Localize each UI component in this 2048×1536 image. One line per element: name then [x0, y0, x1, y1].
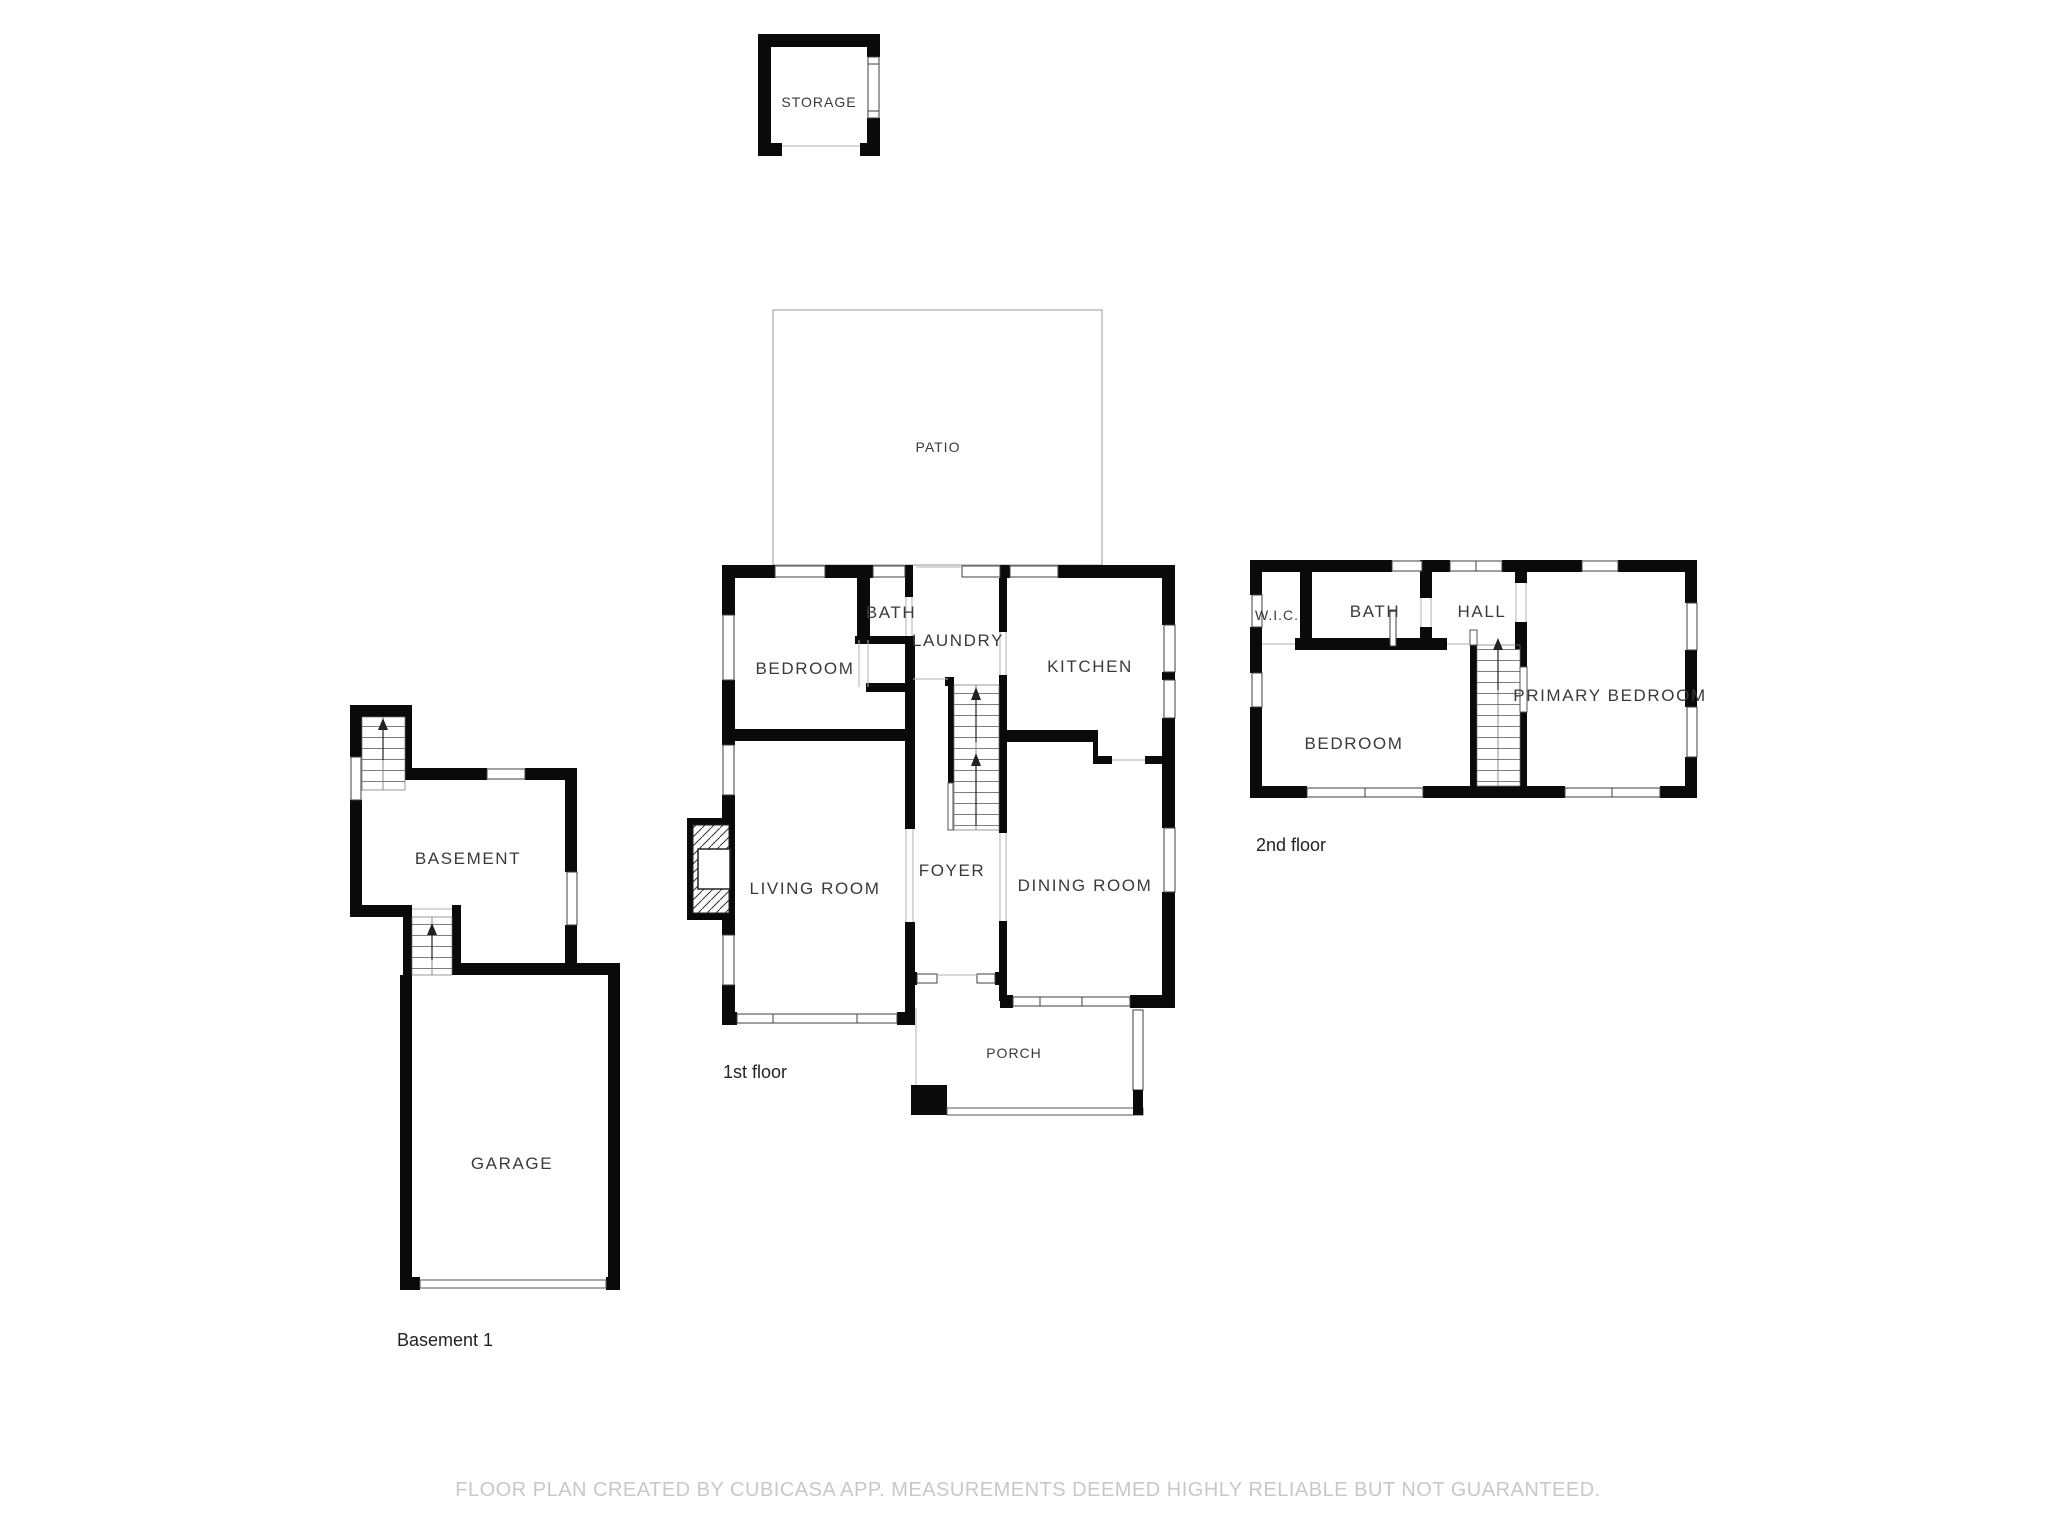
room-label-basement: BASEMENT [415, 849, 521, 868]
stairs-second-floor [1470, 630, 1527, 786]
window [1164, 680, 1175, 718]
room-label-garage: GARAGE [471, 1154, 553, 1173]
window [1164, 625, 1175, 672]
window [1013, 997, 1130, 1006]
stairs-basement-garage [412, 909, 452, 975]
room-label-storage: STORAGE [781, 94, 856, 110]
second-floor: W.I.C. BATH HALL PRIMARY BEDROOM BEDROOM… [1250, 560, 1707, 855]
floor-plan-page: STORAGE PATIO [0, 0, 2048, 1536]
stair-railing [948, 783, 953, 830]
porch: PORCH [911, 1008, 1143, 1115]
stairs-basement-entry [362, 717, 405, 790]
floor-plan-canvas: STORAGE PATIO [0, 0, 2048, 1536]
room-label-bedroom-1f: BEDROOM [755, 659, 854, 678]
basement-walls [350, 705, 620, 1290]
window [1010, 566, 1058, 577]
room-label-wic: W.I.C. [1255, 607, 1299, 623]
first-floor: PORCH BEDROOM BATH LAUNDRY KITCHEN LIVIN… [687, 565, 1175, 1115]
floor-label-basement: Basement 1 [397, 1330, 493, 1350]
window [977, 974, 995, 983]
window [1687, 707, 1697, 757]
window [723, 615, 734, 680]
room-label-porch: PORCH [986, 1045, 1042, 1061]
room-label-patio: PATIO [916, 439, 961, 455]
window [737, 1014, 897, 1023]
porch-railing [947, 1108, 1143, 1115]
window [1164, 828, 1175, 892]
room-label-bath-1f: BATH [866, 603, 916, 622]
window [723, 745, 734, 795]
window [775, 566, 825, 577]
room-label-primary-bedroom: PRIMARY BEDROOM [1513, 686, 1706, 705]
room-label-foyer: FOYER [919, 861, 986, 880]
window [873, 566, 905, 577]
room-label-bath-2f: BATH [1350, 602, 1400, 621]
porch-post [1133, 1090, 1143, 1115]
window [1392, 561, 1422, 571]
porch-post [911, 1085, 947, 1115]
room-label-laundry: LAUNDRY [912, 631, 1004, 650]
window [1252, 673, 1262, 707]
floor-label-second: 2nd floor [1256, 835, 1326, 855]
second-floor-walls [1250, 560, 1697, 798]
garage-door [420, 1280, 606, 1288]
window [868, 57, 879, 118]
stair-newel [1470, 630, 1477, 645]
stairs-first-floor [948, 685, 999, 830]
window [1582, 561, 1618, 571]
window [962, 566, 1000, 577]
patio: PATIO [773, 310, 1102, 565]
fireplace [687, 818, 735, 920]
room-label-hall: HALL [1458, 602, 1507, 621]
window [487, 769, 525, 779]
floor-label-first: 1st floor [723, 1062, 787, 1082]
window [1687, 603, 1697, 650]
window [567, 872, 577, 925]
room-label-kitchen: KITCHEN [1047, 657, 1133, 676]
basement-floor: BASEMENT GARAGE Basement 1 [350, 705, 620, 1350]
room-label-living-room: LIVING ROOM [750, 879, 881, 898]
window [351, 757, 361, 800]
disclaimer-text: FLOOR PLAN CREATED BY CUBICASA APP. MEAS… [455, 1479, 1600, 1501]
room-label-dining-room: DINING ROOM [1018, 876, 1153, 895]
window [917, 974, 937, 983]
storage-unit: STORAGE [758, 34, 880, 156]
room-label-bedroom-2f: BEDROOM [1304, 734, 1403, 753]
window [723, 935, 734, 985]
porch-railing [1133, 1010, 1143, 1090]
